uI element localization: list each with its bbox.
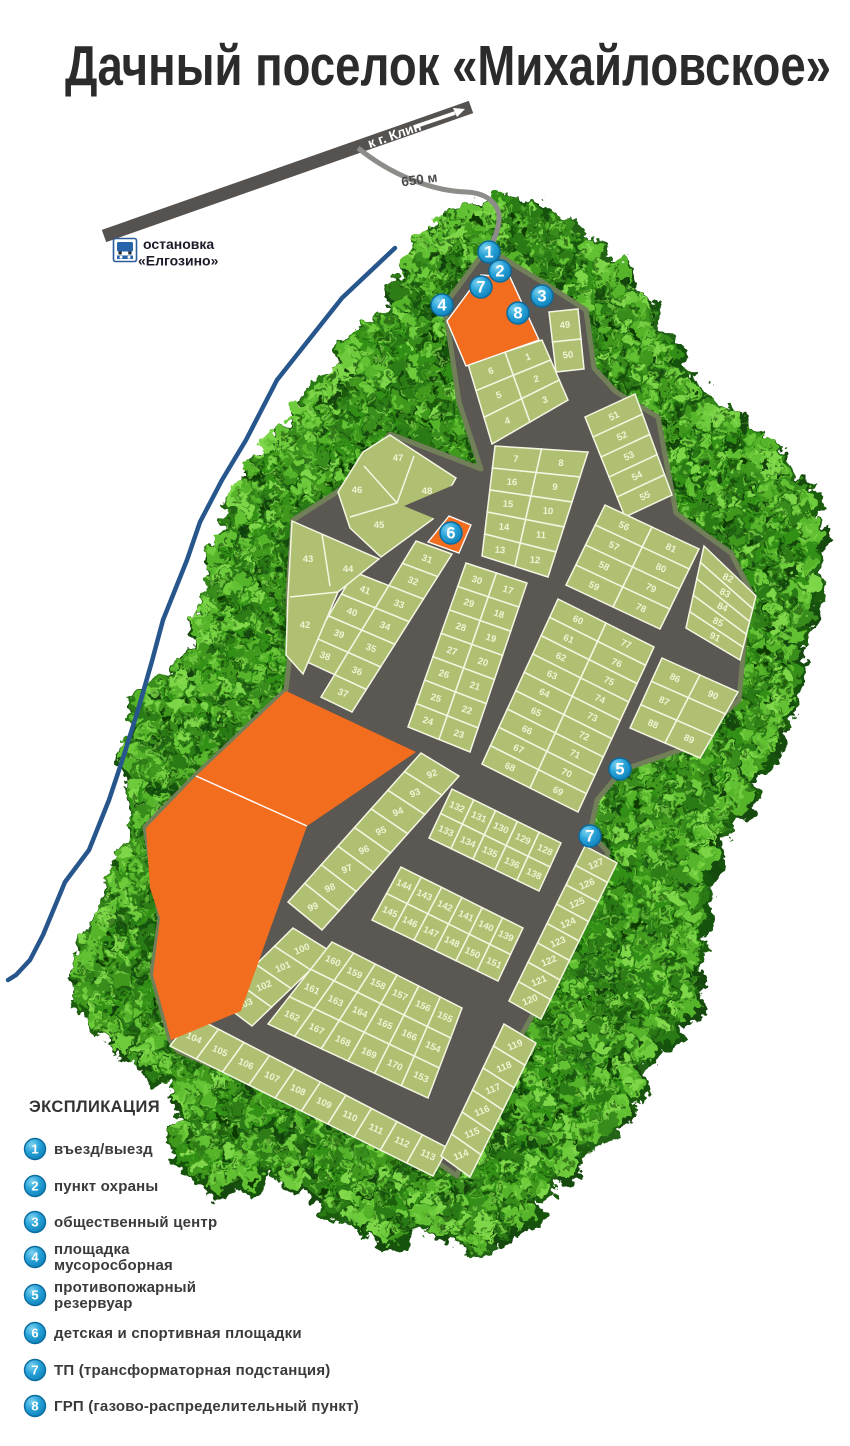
svg-text:9: 9 xyxy=(552,482,558,493)
svg-text:8: 8 xyxy=(513,305,522,323)
svg-text:7: 7 xyxy=(585,828,594,846)
svg-text:противопожарный: противопожарный xyxy=(54,1279,196,1296)
svg-text:42: 42 xyxy=(300,620,311,631)
svg-text:49: 49 xyxy=(559,319,571,331)
svg-text:7: 7 xyxy=(476,279,485,297)
svg-text:7: 7 xyxy=(513,454,519,465)
svg-text:4: 4 xyxy=(31,1250,39,1265)
svg-text:резервуар: резервуар xyxy=(54,1295,133,1312)
svg-text:50: 50 xyxy=(562,349,574,361)
svg-text:1: 1 xyxy=(31,1142,38,1157)
svg-text:общественный центр: общественный центр xyxy=(54,1214,217,1231)
svg-text:пункт охраны: пункт охраны xyxy=(54,1178,158,1195)
svg-text:12: 12 xyxy=(529,555,540,567)
svg-text:11: 11 xyxy=(536,530,548,542)
svg-text:детская и спортивная площадки: детская и спортивная площадки xyxy=(54,1325,302,1342)
svg-text:2: 2 xyxy=(495,263,504,281)
svg-text:44: 44 xyxy=(343,564,354,575)
svg-text:13: 13 xyxy=(494,545,505,557)
svg-text:8: 8 xyxy=(31,1399,38,1414)
svg-text:45: 45 xyxy=(374,520,385,531)
svg-text:площадка: площадка xyxy=(54,1241,130,1258)
svg-text:14: 14 xyxy=(498,522,510,534)
svg-text:5: 5 xyxy=(615,761,624,779)
svg-text:остановка: остановка xyxy=(143,236,214,252)
svg-text:43: 43 xyxy=(303,554,314,565)
svg-text:10: 10 xyxy=(542,506,553,518)
svg-text:46: 46 xyxy=(352,485,363,496)
svg-text:1: 1 xyxy=(484,244,493,262)
svg-text:6: 6 xyxy=(446,525,455,543)
svg-text:ТП (трансформаторная подстанц: ТП (трансформаторная подстанция) xyxy=(54,1362,330,1379)
svg-text:3: 3 xyxy=(31,1215,38,1230)
svg-text:ЭКСПЛИКАЦИЯ: ЭКСПЛИКАЦИЯ xyxy=(29,1098,160,1116)
svg-text:Дачный поселок «Михайловское»: Дачный поселок «Михайловское» xyxy=(65,34,831,98)
svg-text:16: 16 xyxy=(506,477,517,489)
svg-text:ГРП (газово-распределительный: ГРП (газово-распределительный пункт) xyxy=(54,1398,359,1415)
svg-text:мусоросборная: мусоросборная xyxy=(54,1257,173,1274)
svg-text:«Елгозино»: «Елгозино» xyxy=(138,253,219,269)
svg-text:47: 47 xyxy=(393,453,404,464)
svg-text:5: 5 xyxy=(31,1288,38,1303)
svg-text:2: 2 xyxy=(31,1179,38,1194)
svg-text:15: 15 xyxy=(502,499,514,511)
svg-text:4: 4 xyxy=(437,297,447,315)
svg-text:8: 8 xyxy=(558,458,564,469)
svg-text:въезд/выезд: въезд/выезд xyxy=(54,1141,153,1158)
svg-text:7: 7 xyxy=(31,1363,38,1378)
svg-text:3: 3 xyxy=(537,288,546,306)
svg-text:48: 48 xyxy=(422,486,433,497)
svg-text:6: 6 xyxy=(31,1326,38,1341)
